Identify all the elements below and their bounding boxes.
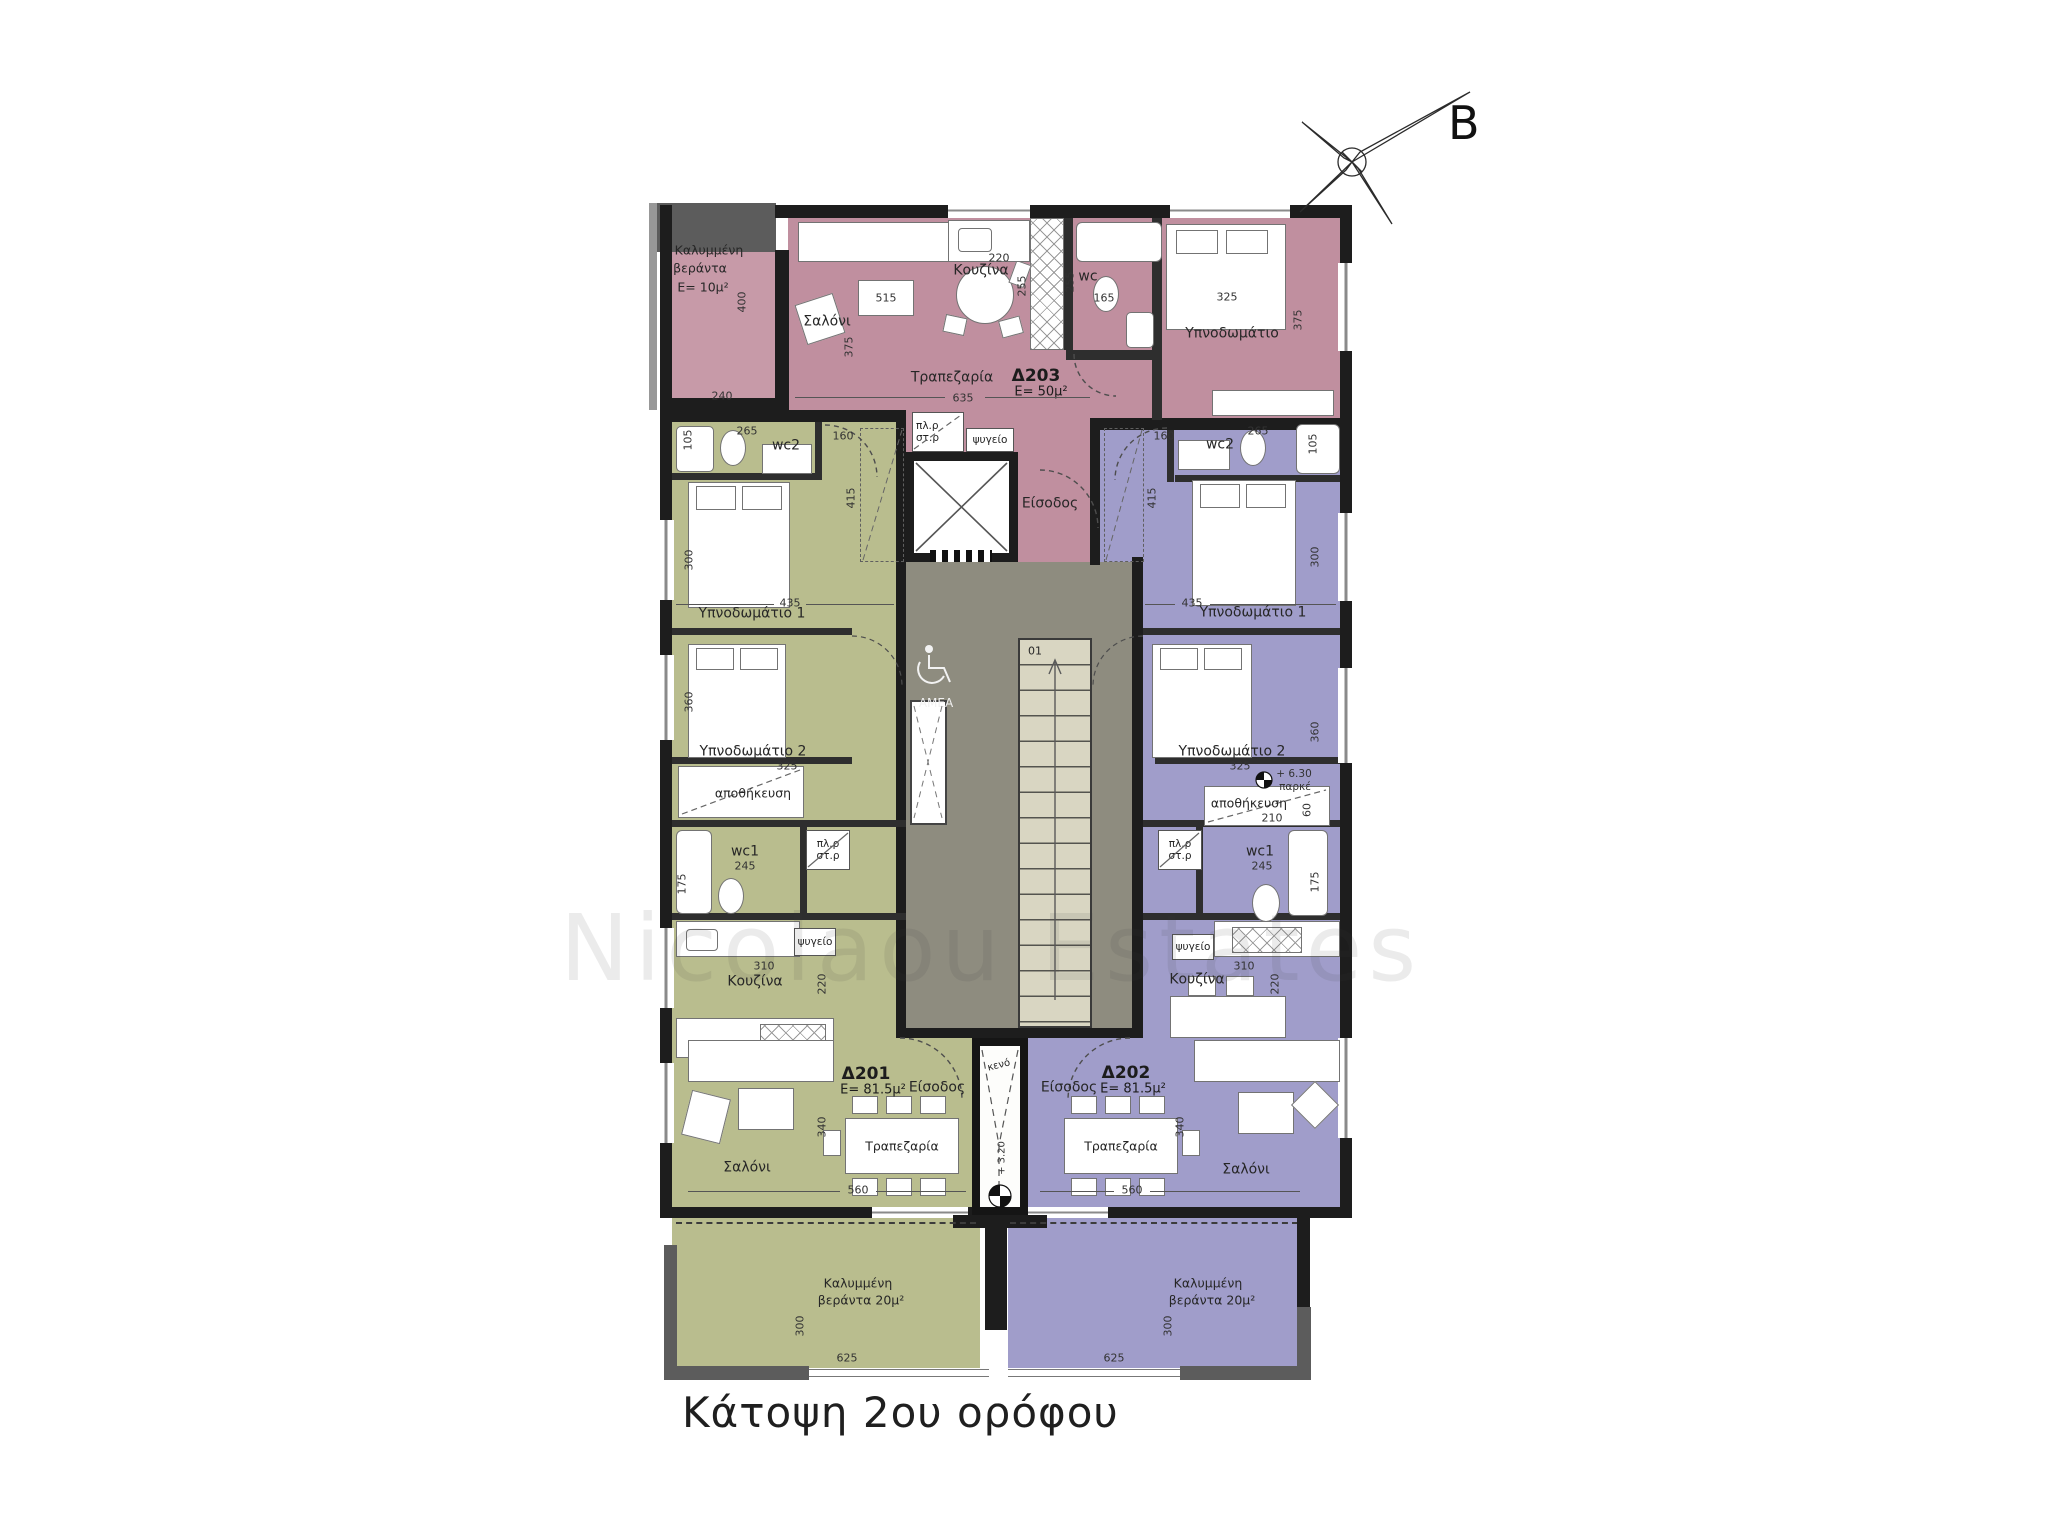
veranda-outer-frame (649, 203, 657, 410)
dim-line (806, 604, 894, 605)
dim-label: 400 (736, 292, 749, 313)
dim-line (985, 397, 1090, 398)
dim-label: 105 (682, 430, 695, 451)
laundry-label-2: στ.ρ (1169, 850, 1192, 862)
sofa (688, 1040, 834, 1082)
pillow (1226, 230, 1268, 254)
dim-label: 340 (816, 1117, 829, 1138)
dim-line (876, 1191, 966, 1192)
room-label-wc2: wc2 (772, 438, 800, 455)
dim-label: 325 (777, 760, 798, 773)
kitchen-sink (958, 228, 992, 252)
dim-label: 265 (737, 425, 758, 438)
floor-plan-canvas: 01 κενό + 3.20 AMEA πλ.ρ στ.ρ ψυγείο (0, 0, 2048, 1536)
laundry-tag: πλ.ρ στ.ρ (1158, 830, 1202, 870)
dim-label: 105 (1307, 434, 1320, 455)
dim-label: 415 (845, 488, 858, 509)
room-label-wc1: wc1 (731, 844, 759, 861)
chair (886, 1096, 912, 1114)
bathtub (1076, 222, 1162, 262)
dim-line (1150, 1191, 1300, 1192)
dresser (1212, 390, 1334, 416)
dim-label: 165 (1094, 292, 1115, 305)
dim-label: 220 (989, 252, 1010, 265)
level-label: παρκέ (1279, 781, 1311, 793)
dim-line (1145, 604, 1175, 605)
room-label-dining: Τραπεζαρία (1084, 1139, 1158, 1154)
chair (1071, 1096, 1097, 1114)
partition (1143, 628, 1340, 635)
room-label-entrance: Είσοδος (909, 1080, 965, 1097)
window (658, 655, 674, 740)
dim-label: 415 (1146, 488, 1159, 509)
coffee-table (1238, 1092, 1294, 1134)
apartment-area: E= 81.5μ² (1100, 1082, 1166, 1097)
sofa (798, 222, 950, 262)
dim-label: 255 (1064, 272, 1077, 293)
window (658, 1063, 674, 1143)
laundry-label-1: πλ.ρ (817, 838, 840, 850)
dim-label: 300 (1309, 547, 1322, 568)
dim-label: 300 (1162, 1316, 1175, 1337)
laundry-label-1: πλ.ρ (1169, 838, 1192, 850)
room-label-kitchen: Κουζίνα (953, 263, 1008, 280)
dim-label: 375 (843, 337, 856, 358)
apartment-id: Δ203 (1012, 366, 1061, 386)
apartment-id: Δ202 (1102, 1063, 1151, 1083)
dim-line (688, 1191, 840, 1192)
wall-203-201 (660, 410, 906, 422)
apartment-202-balcony (1008, 1218, 1300, 1368)
dim-line (676, 604, 774, 605)
partition (672, 473, 822, 480)
stair-number-label: 01 (1028, 644, 1042, 657)
wall-veranda-right (775, 250, 789, 410)
balcony-label-2: βεράντα 20μ² (1169, 1293, 1256, 1308)
stair-level-label: + 3.20 (997, 1141, 1008, 1175)
sofa (1194, 1040, 1340, 1082)
chair (1139, 1178, 1165, 1196)
pillow (1246, 484, 1286, 508)
veranda-label-2: βεράντα (673, 261, 727, 276)
dim-line (795, 397, 945, 398)
chair (886, 1178, 912, 1196)
elevator-door-hatch (930, 550, 992, 562)
pillow (740, 648, 778, 670)
balcony-door-line (676, 1222, 976, 1224)
page-title: Κάτοψη 2ου ορόφου (682, 1388, 1119, 1437)
room-label-bedroom: Υπνοδωμάτιο (1185, 326, 1279, 343)
laundry-label-1: πλ.ρ (916, 420, 939, 432)
wc-sink (1126, 312, 1154, 348)
window (1170, 203, 1290, 218)
room-label-dining: Τραπεζαρία (911, 370, 993, 387)
kitchen-cabinet-column (1030, 218, 1064, 350)
dim-label: 560 (1122, 1184, 1143, 1197)
laundry-label-2: στ.ρ (817, 850, 840, 862)
window (1338, 263, 1354, 351)
chair (920, 1096, 946, 1114)
laundry-tag: πλ.ρ στ.ρ (806, 830, 850, 870)
window (658, 520, 674, 600)
fridge-label: ψυγείο (973, 434, 1008, 446)
room-label-living: Σαλόνι (1222, 1162, 1269, 1179)
dim-label: 175 (1309, 872, 1322, 893)
kitchen-island (1170, 996, 1286, 1038)
room-label-wc2: wc2 (1206, 437, 1234, 454)
pillow (1204, 648, 1242, 670)
balcony-label-1: Καλυμμένη (824, 1276, 893, 1291)
dim-label: 160 (1154, 430, 1175, 443)
partition (815, 422, 822, 480)
balcony-door-line (1010, 1222, 1298, 1224)
dim-label: 625 (1104, 1352, 1125, 1365)
veranda-area-label: E= 10μ² (677, 280, 728, 295)
laundry-tag: πλ.ρ στ.ρ (912, 412, 964, 452)
room-label-bedroom1: Υπνοδωμάτιο 1 (1200, 605, 1307, 622)
balcony-divider (985, 1228, 1007, 1330)
balcony-railing (809, 1369, 989, 1377)
dim-label: 160 (833, 430, 854, 443)
dim-label: 360 (683, 692, 696, 713)
window (1338, 668, 1354, 763)
window (948, 203, 1030, 218)
amea-light-well (910, 700, 947, 825)
level-value: + 6.30 (1276, 768, 1312, 780)
compass-label: B (1448, 96, 1480, 150)
room-label-entrance: Είσοδος (1022, 496, 1078, 513)
dim-label: 240 (712, 390, 733, 403)
apartment-area: E= 81.5μ² (840, 1083, 906, 1098)
dim-label: 360 (1309, 722, 1322, 743)
balcony-label-2: βεράντα 20μ² (818, 1293, 905, 1308)
room-label-bedroom2: Υπνοδωμάτιο 2 (1179, 744, 1286, 761)
elevator (905, 452, 1018, 562)
balcony-railing (1008, 1369, 1180, 1377)
wardrobe (860, 428, 904, 562)
pillow (1160, 648, 1198, 670)
room-label-wc1: wc1 (1246, 844, 1274, 861)
dim-label: 435 (780, 597, 801, 610)
balcony-label-1: Καλυμμένη (1174, 1276, 1243, 1291)
chair (1139, 1096, 1165, 1114)
dim-line (1040, 1191, 1114, 1192)
room-label-storage: αποθήκευση (715, 786, 791, 801)
dim-label: 515 (876, 292, 897, 305)
wardrobe (1104, 428, 1144, 562)
chair (1071, 1178, 1097, 1196)
partition (672, 820, 906, 827)
coffee-table (738, 1088, 794, 1130)
room-label-living: Σαλόνι (723, 1160, 770, 1177)
dim-label: 560 (848, 1184, 869, 1197)
room-label-living: Σαλόνι (803, 314, 850, 331)
pillow (1176, 230, 1218, 254)
room-label-wc: wc (1078, 269, 1097, 286)
partition (1066, 350, 1162, 360)
chair (852, 1096, 878, 1114)
veranda-label-1: Καλυμμένη (675, 243, 744, 258)
apartment-id: Δ201 (842, 1064, 891, 1084)
dim-label: 325 (1230, 760, 1251, 773)
balcony-edge (1180, 1366, 1311, 1380)
dim-label: 340 (1174, 1117, 1187, 1138)
dim-label: 265 (1248, 425, 1269, 438)
balcony-edge (1297, 1218, 1310, 1310)
room-label-bedroom2: Υπνοδωμάτιο 2 (700, 744, 807, 761)
dim-label: 375 (1292, 310, 1305, 331)
dim-label: 255 (1016, 276, 1029, 297)
wall-core-bottom (896, 1028, 1143, 1038)
pillow (742, 486, 782, 510)
chair (1105, 1096, 1131, 1114)
wall-203-corridor (1090, 418, 1100, 565)
room-label-entrance: Είσοδος (1041, 1080, 1097, 1097)
watermark: Nicolaou Estates (560, 895, 1520, 1002)
dim-label: 245 (735, 860, 756, 873)
dim-label: 625 (837, 1352, 858, 1365)
window (1338, 1038, 1354, 1138)
pillow (1200, 484, 1240, 508)
dim-label: 325 (1217, 291, 1238, 304)
room-label-dining: Τραπεζαρία (865, 1139, 939, 1154)
window (1338, 513, 1354, 601)
balcony-edge (664, 1245, 677, 1378)
pillow (696, 486, 736, 510)
dim-label: 635 (953, 392, 974, 405)
dim-label: 60 (1301, 803, 1314, 817)
pillow (696, 648, 734, 670)
chair (920, 1178, 946, 1196)
balcony-edge (664, 1366, 809, 1380)
room-label-storage: αποθήκευση (1211, 796, 1287, 811)
laundry-label-2: στ.ρ (916, 432, 939, 444)
fridge-tag: ψυγείο (966, 428, 1014, 452)
dim-label: 175 (676, 874, 689, 895)
dim-label: 300 (683, 550, 696, 571)
dim-label: 245 (1252, 860, 1273, 873)
dim-label: 300 (794, 1316, 807, 1337)
partition (672, 628, 852, 635)
dim-label: 210 (1262, 812, 1283, 825)
amea-label: AMEA (919, 696, 953, 710)
